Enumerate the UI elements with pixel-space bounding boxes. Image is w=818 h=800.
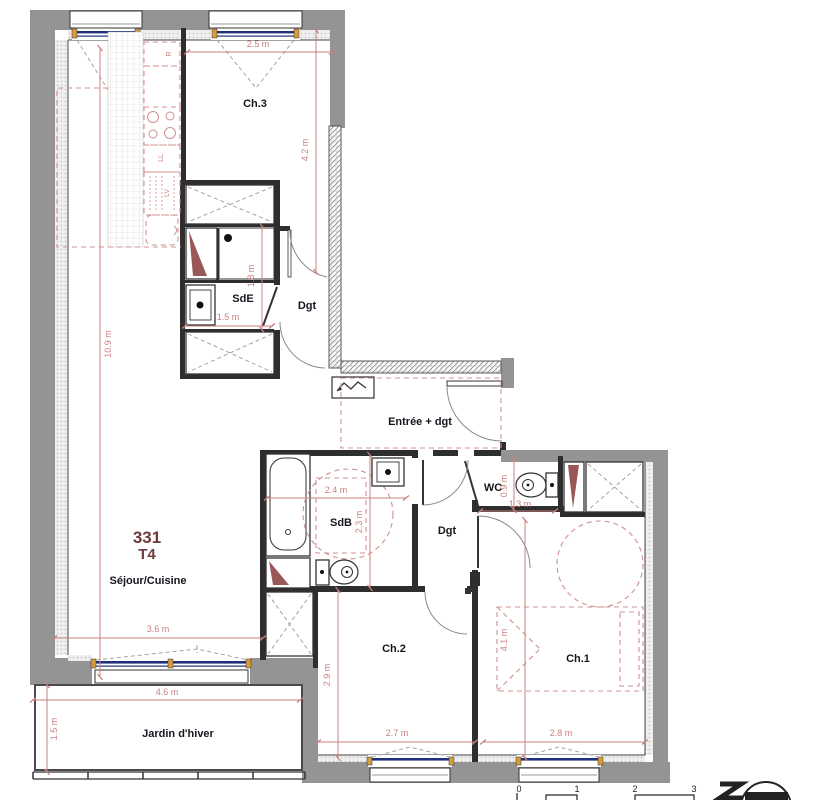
floor-plan: R LL LV [0,0,818,800]
sde-fixtures [186,185,274,374]
scale-tick-2: 2 [632,784,637,794]
north-arrow-icon [720,782,791,800]
washbasin-sde-icon [186,285,215,325]
dim-ch1-height: 4.1 m [499,629,509,652]
scale-tick-3: 3 [691,784,696,794]
dim-sde-width: 1.5 m [217,312,240,322]
scale-tick-1: 1 [574,784,579,794]
dishwasher-label: LV [164,189,171,197]
duct-wc-icon [564,462,584,512]
room-label-wc: WC [484,482,502,494]
railing [33,772,305,779]
closet-sde-top [186,185,274,224]
room-label-ch3: Ch.3 [243,98,267,110]
turning-circle-ch1 [557,521,643,607]
shower-icon [186,228,217,279]
door-dgt-lower-arc [280,322,325,368]
kitchen-sink-icon [146,215,178,245]
door-ch3 [288,230,327,277]
dim-sdb-width: 2.4 m [325,485,348,495]
fridge-label: R [166,51,173,56]
toilet-sdb-icon [316,560,358,585]
scale-bar: 0 1 2 3 [516,784,696,800]
fridge-icon [144,42,180,66]
dim-sejour-height: 10.9 m [103,330,113,358]
door-sdb [423,460,468,505]
room-label-ch1: Ch.1 [566,653,590,665]
room-label-ch2: Ch.2 [382,643,406,655]
door-ch1 [478,516,530,568]
floor-plan-page: R LL LV [0,0,818,800]
party-wall [329,126,501,373]
ch1-furniture [497,521,643,691]
scale-tick-0: 0 [516,784,521,794]
closet-ch1-top [586,462,643,512]
washbasin-sdb-icon [372,458,404,486]
room-label-dgt-lower: Dgt [438,525,457,537]
unit-number: 331 [133,528,161,547]
kitchen: R LL LV [57,32,181,247]
entry-door [447,381,502,441]
room-label-jardin: Jardin d'hiver [142,728,214,740]
closet-sejour [266,592,313,656]
duct-sdb-icon [266,558,310,588]
dim-ch2-height: 2.9 m [322,664,332,687]
window-ch2 [367,747,454,782]
bed-icon [497,607,643,691]
bathtub-icon [266,454,310,556]
washer-label: LL [158,154,165,162]
dim-ch2-width: 2.7 m [386,728,409,738]
dim-jardin-width: 4.6 m [156,687,179,697]
window-sejour-bay [91,645,251,683]
wc-fixtures [516,462,643,512]
room-label-dgt-upper: Dgt [298,300,317,312]
room-label-sdb: SdB [330,517,352,529]
dim-ch3-height: 4.2 m [300,139,310,162]
interior-walls [180,28,645,762]
dim-ch3-width: 2.5 m [247,39,270,49]
closet-sde-bottom [186,332,274,374]
room-label-sejour: Séjour/Cuisine [109,575,186,587]
door-ch2 [425,588,471,634]
dim-jardin-height: 1.5 m [49,718,59,741]
room-label-entree: Entrée + dgt [388,416,452,428]
toilet-wc-icon [516,473,558,497]
dishwasher-icon [144,172,180,215]
door-sde [263,287,277,326]
entry-threshold-icon [332,377,374,398]
dim-sejour-width: 3.6 m [147,624,170,634]
hob-icon [144,107,180,145]
window-top-b [209,11,302,88]
dim-sdb-height: 2.3 m [354,511,364,534]
dim-sde-height: 1.8 m [246,265,256,288]
spot-dot [224,234,232,242]
kitchen-tiles [108,32,143,247]
unit-type: T4 [138,546,156,563]
window-ch1 [516,747,603,782]
room-label-sde: SdE [232,293,253,305]
dim-ch1-width: 2.8 m [550,728,573,738]
dim-wc-width: 1.3 m [509,499,532,509]
